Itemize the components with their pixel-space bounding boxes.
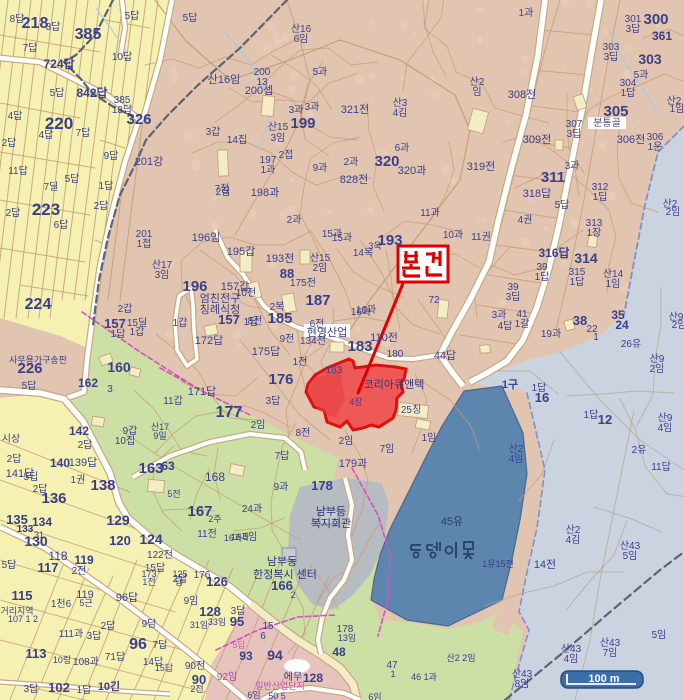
svg-text:218: 218: [22, 15, 49, 32]
svg-text:9전: 9전: [280, 333, 295, 345]
svg-text:4답: 4답: [8, 110, 23, 122]
svg-text:2갑: 2갑: [118, 303, 133, 315]
svg-text:138: 138: [90, 477, 115, 494]
svg-text:24: 24: [615, 318, 629, 332]
svg-text:5임: 5임: [652, 628, 667, 641]
svg-text:24과: 24과: [242, 503, 262, 515]
svg-text:130: 130: [24, 533, 48, 549]
svg-text:311: 311: [541, 169, 565, 186]
svg-text:8전: 8전: [296, 427, 311, 439]
svg-text:842답: 842답: [76, 85, 107, 100]
svg-text:177: 177: [216, 404, 243, 421]
svg-text:122전: 122전: [147, 549, 173, 561]
svg-text:160: 160: [107, 359, 131, 375]
svg-text:48: 48: [332, 645, 346, 659]
svg-text:1유15전: 1유15전: [482, 559, 514, 569]
svg-text:13임: 13임: [338, 632, 356, 643]
svg-text:일반산업단지: 일반산업단지: [255, 681, 305, 691]
svg-text:199: 199: [290, 115, 315, 132]
svg-text:2: 2: [290, 590, 295, 600]
svg-text:2임: 2임: [650, 362, 665, 375]
svg-text:163: 163: [138, 460, 163, 477]
svg-text:136: 136: [41, 490, 66, 507]
svg-text:9임: 9임: [184, 594, 199, 607]
svg-text:183: 183: [347, 338, 372, 355]
svg-text:224: 224: [25, 296, 52, 313]
svg-text:5전: 5전: [167, 489, 180, 499]
svg-text:117: 117: [38, 560, 59, 575]
svg-text:142: 142: [69, 424, 89, 438]
svg-text:2집: 2집: [216, 186, 231, 198]
svg-text:157: 157: [218, 312, 240, 327]
svg-text:2과: 2과: [287, 214, 302, 226]
svg-text:96답: 96답: [116, 591, 138, 604]
svg-text:1장: 1장: [587, 227, 602, 239]
svg-text:385: 385: [75, 26, 102, 43]
svg-text:303: 303: [638, 51, 662, 67]
svg-text:16과: 16과: [231, 532, 249, 542]
svg-text:15답: 15답: [145, 562, 165, 574]
svg-text:10긴: 10긴: [98, 679, 120, 693]
svg-text:318답: 318답: [523, 187, 551, 200]
svg-text:1구: 1구: [502, 378, 518, 391]
svg-text:1임: 1임: [670, 102, 684, 115]
svg-text:1접: 1접: [137, 238, 152, 250]
svg-text:96: 96: [129, 636, 147, 653]
svg-text:9답: 9답: [104, 150, 119, 162]
svg-text:5근: 5근: [79, 598, 92, 608]
svg-text:4답: 4답: [498, 320, 513, 332]
svg-text:95: 95: [230, 614, 244, 629]
svg-text:9일: 9일: [153, 431, 166, 441]
svg-text:7답: 7답: [153, 639, 168, 651]
svg-text:코리아큐앤텍: 코리아큐앤텍: [364, 378, 425, 391]
svg-text:1: 1: [593, 332, 599, 343]
svg-text:72: 72: [428, 295, 440, 306]
svg-text:5답: 5답: [555, 199, 570, 211]
svg-text:1갑: 1갑: [173, 317, 188, 329]
svg-text:6과: 6과: [395, 142, 410, 154]
svg-text:남부등: 남부등: [316, 505, 346, 518]
svg-text:1천6: 1천6: [51, 598, 72, 610]
svg-text:복지회관: 복지회관: [311, 517, 351, 530]
svg-text:223: 223: [32, 200, 60, 219]
svg-text:5답: 5답: [65, 173, 80, 185]
svg-text:7임: 7임: [603, 646, 618, 659]
svg-text:15과: 15과: [332, 232, 352, 244]
svg-text:187: 187: [305, 292, 330, 309]
svg-text:1답: 1답: [77, 684, 92, 696]
svg-text:4장: 4장: [349, 397, 362, 407]
svg-text:6: 6: [260, 631, 266, 642]
svg-text:320과: 320과: [398, 164, 426, 177]
svg-text:828전: 828전: [340, 173, 368, 186]
svg-text:7임: 7임: [380, 442, 395, 455]
svg-text:2임: 2임: [313, 261, 328, 274]
svg-text:44답: 44답: [434, 349, 456, 362]
svg-text:2답: 2답: [173, 573, 188, 585]
svg-text:5답: 5답: [183, 12, 198, 24]
svg-text:175전: 175전: [290, 277, 316, 289]
svg-text:11권: 11권: [471, 231, 491, 243]
svg-text:1과: 1과: [261, 164, 276, 176]
svg-text:31임: 31임: [190, 619, 208, 630]
svg-text:3답: 3답: [266, 395, 281, 407]
svg-text:129: 129: [106, 512, 130, 528]
svg-text:108과: 108과: [73, 656, 99, 668]
svg-text:306전: 306전: [617, 133, 645, 146]
svg-text:2유: 2유: [632, 444, 647, 456]
svg-text:196임: 196임: [192, 231, 220, 244]
svg-text:119: 119: [74, 553, 94, 567]
svg-text:산16임: 산16임: [208, 73, 240, 86]
svg-text:314: 314: [574, 250, 598, 266]
svg-text:10집: 10집: [115, 435, 135, 447]
svg-text:10과: 10과: [443, 229, 463, 241]
svg-text:12: 12: [598, 412, 612, 427]
svg-text:326: 326: [126, 111, 151, 128]
svg-text:11갑: 11갑: [163, 395, 183, 407]
svg-text:171답: 171답: [188, 385, 216, 398]
svg-text:3임: 3임: [271, 131, 286, 144]
svg-text:134: 134: [32, 515, 52, 529]
svg-text:11답: 11답: [8, 165, 28, 177]
svg-text:126: 126: [206, 574, 228, 589]
svg-text:193전: 193전: [266, 252, 294, 265]
svg-text:6임: 6임: [247, 689, 260, 700]
svg-text:198과: 198과: [251, 186, 279, 199]
svg-text:2답: 2답: [6, 207, 21, 219]
svg-text:316답: 316답: [538, 245, 569, 260]
svg-text:5딥: 5딥: [24, 471, 39, 483]
svg-text:120: 120: [109, 533, 131, 548]
svg-text:162: 162: [78, 376, 98, 390]
svg-text:168: 168: [205, 470, 225, 484]
svg-text:11과: 11과: [420, 207, 440, 219]
svg-text:16과: 16과: [356, 304, 376, 316]
svg-text:90: 90: [192, 672, 206, 687]
svg-text:1권: 1권: [71, 474, 86, 486]
svg-text:300: 300: [643, 11, 668, 28]
svg-text:2과: 2과: [344, 156, 359, 168]
svg-text:2임: 2임: [672, 318, 684, 331]
svg-text:산15: 산15: [268, 121, 289, 133]
svg-text:309전: 309전: [523, 133, 551, 146]
svg-text:14전: 14전: [534, 558, 556, 571]
svg-text:178: 178: [311, 478, 333, 493]
svg-text:3딥: 3딥: [567, 128, 582, 140]
svg-text:45유: 45유: [441, 515, 463, 528]
svg-text:176: 176: [268, 371, 293, 388]
svg-text:3과: 3과: [305, 101, 320, 113]
svg-text:5과: 5과: [313, 66, 328, 78]
svg-text:179과: 179과: [339, 457, 367, 470]
svg-text:15답: 15답: [155, 662, 173, 673]
svg-text:124: 124: [139, 531, 163, 547]
svg-text:128: 128: [303, 671, 323, 685]
svg-text:139답: 139답: [69, 456, 97, 469]
svg-text:9담: 9담: [142, 618, 157, 630]
svg-text:107 1 2: 107 1 2: [8, 614, 38, 624]
svg-text:3답: 3답: [46, 21, 61, 33]
svg-text:2답: 2답: [101, 620, 116, 632]
svg-text:2답: 2답: [2, 137, 17, 149]
svg-text:3답: 3답: [626, 23, 641, 35]
svg-text:3답: 3답: [87, 630, 102, 642]
svg-text:1답: 1답: [111, 328, 126, 340]
svg-text:5답: 5답: [125, 10, 140, 22]
svg-text:183: 183: [326, 365, 343, 376]
svg-text:16: 16: [535, 390, 549, 405]
svg-text:4답: 4답: [39, 129, 54, 141]
svg-text:1답: 1답: [584, 409, 599, 421]
svg-text:19과: 19과: [541, 328, 561, 340]
svg-text:3욱: 3욱: [368, 241, 381, 251]
svg-text:5답: 5답: [22, 380, 37, 392]
svg-text:10링: 10링: [53, 654, 71, 665]
svg-text:3과: 3과: [492, 309, 507, 321]
svg-text:4임: 4임: [658, 421, 673, 434]
svg-text:175답: 175답: [252, 345, 280, 358]
svg-text:185: 185: [267, 310, 292, 327]
svg-text:319전: 319전: [467, 160, 495, 173]
svg-text:724답: 724답: [43, 56, 74, 71]
svg-text:26유: 26유: [621, 338, 641, 350]
svg-text:63: 63: [161, 459, 175, 473]
svg-text:71답: 71답: [105, 651, 125, 663]
svg-text:2답: 2답: [78, 439, 93, 451]
svg-text:5답: 5답: [50, 87, 65, 99]
svg-text:200셉: 200셉: [245, 84, 273, 97]
svg-text:1임: 1임: [606, 277, 621, 290]
svg-text:140: 140: [50, 456, 70, 470]
svg-text:167: 167: [187, 503, 212, 520]
svg-text:3: 3: [107, 384, 113, 395]
svg-text:2임: 2임: [339, 434, 354, 447]
svg-text:임: 임: [472, 85, 481, 98]
svg-text:9과: 9과: [274, 481, 289, 493]
svg-text:111과: 111과: [59, 628, 83, 640]
svg-text:2답: 2답: [7, 453, 22, 465]
svg-text:4임: 4임: [564, 652, 579, 665]
svg-text:1답: 1답: [621, 87, 636, 99]
svg-text:90전: 90전: [185, 660, 205, 672]
svg-text:113: 113: [26, 646, 47, 661]
svg-text:1답: 1답: [535, 271, 550, 283]
svg-text:102: 102: [48, 680, 70, 695]
svg-text:157갑: 157갑: [221, 280, 249, 293]
svg-text:1딥: 1딥: [593, 191, 608, 203]
svg-text:4권: 4권: [518, 214, 533, 226]
svg-text:6임: 6임: [294, 32, 309, 45]
svg-text:1전: 1전: [293, 356, 308, 368]
svg-text:25칭: 25칭: [401, 404, 421, 416]
svg-text:93: 93: [239, 649, 253, 663]
svg-text:2임: 2임: [251, 418, 266, 431]
svg-text:201강: 201강: [135, 155, 163, 168]
svg-text:321전: 321전: [341, 103, 369, 116]
svg-text:3과: 3과: [565, 160, 580, 172]
svg-text:195갑: 195갑: [227, 245, 255, 258]
svg-text:2임: 2임: [666, 205, 681, 218]
svg-text:3딥: 3딥: [506, 291, 521, 303]
svg-text:134전: 134전: [300, 335, 326, 347]
svg-text:3갑: 3갑: [206, 126, 221, 138]
svg-text:7딜: 7딜: [44, 181, 59, 193]
svg-text:6답: 6답: [54, 219, 69, 231]
svg-text:4임: 4임: [509, 452, 524, 465]
svg-text:남부동: 남부동: [267, 555, 297, 568]
svg-text:11전: 11전: [197, 528, 217, 540]
svg-text:3답: 3답: [24, 683, 39, 695]
svg-text:110전: 110전: [370, 331, 398, 344]
svg-text:1답: 1답: [244, 316, 259, 328]
svg-text:180: 180: [387, 349, 404, 360]
svg-text:94: 94: [267, 647, 283, 663]
svg-text:1임: 1임: [422, 431, 437, 444]
svg-text:5임: 5임: [623, 549, 638, 562]
svg-text:3임: 3임: [155, 268, 170, 281]
svg-text:7답: 7답: [76, 127, 91, 139]
svg-text:7답: 7답: [275, 450, 290, 462]
svg-text:100 m: 100 m: [588, 673, 619, 685]
svg-text:115: 115: [12, 588, 33, 603]
svg-text:9과: 9과: [313, 162, 328, 174]
svg-text:1운: 1운: [648, 141, 663, 153]
svg-text:1과: 1과: [519, 7, 534, 19]
svg-text:6임: 6임: [368, 691, 381, 700]
svg-text:361: 361: [652, 29, 672, 43]
svg-text:5답: 5답: [2, 559, 17, 571]
svg-text:1답: 1답: [99, 180, 114, 192]
svg-text:3딥: 3딥: [604, 51, 619, 63]
svg-text:46 1과: 46 1과: [411, 672, 437, 682]
svg-text:38: 38: [573, 313, 587, 328]
svg-text:7답: 7답: [23, 42, 38, 54]
svg-text:92임: 92임: [217, 670, 237, 683]
svg-text:4김: 4김: [566, 534, 581, 546]
svg-text:4김: 4김: [393, 107, 408, 119]
svg-text:320: 320: [374, 153, 399, 170]
svg-text:8임: 8임: [515, 677, 530, 690]
svg-text:산2 2임: 산2 2임: [446, 652, 475, 663]
svg-text:2답: 2답: [94, 200, 109, 212]
svg-text:1갈: 1갈: [515, 317, 530, 330]
svg-text:분통골: 분통골: [593, 117, 621, 129]
svg-text:14집: 14집: [227, 134, 247, 146]
svg-text:1갑: 1갑: [130, 326, 145, 338]
svg-text:50 5: 50 5: [268, 691, 286, 700]
svg-text:172답: 172답: [195, 334, 223, 347]
svg-text:시상: 시상: [2, 433, 20, 445]
svg-text:1: 1: [390, 669, 395, 679]
svg-text:10답: 10답: [112, 51, 132, 63]
svg-text:11답: 11답: [651, 461, 671, 473]
svg-text:1전: 1전: [142, 577, 155, 587]
svg-text:33임: 33임: [208, 616, 226, 627]
svg-text:5답: 5답: [232, 639, 245, 650]
svg-text:사무용가구송판: 사무용가구송판: [9, 355, 67, 365]
svg-text:1답: 1답: [570, 276, 585, 288]
svg-text:2접: 2접: [279, 149, 294, 161]
svg-text:308전: 308전: [508, 88, 536, 101]
svg-text:135: 135: [6, 512, 28, 527]
